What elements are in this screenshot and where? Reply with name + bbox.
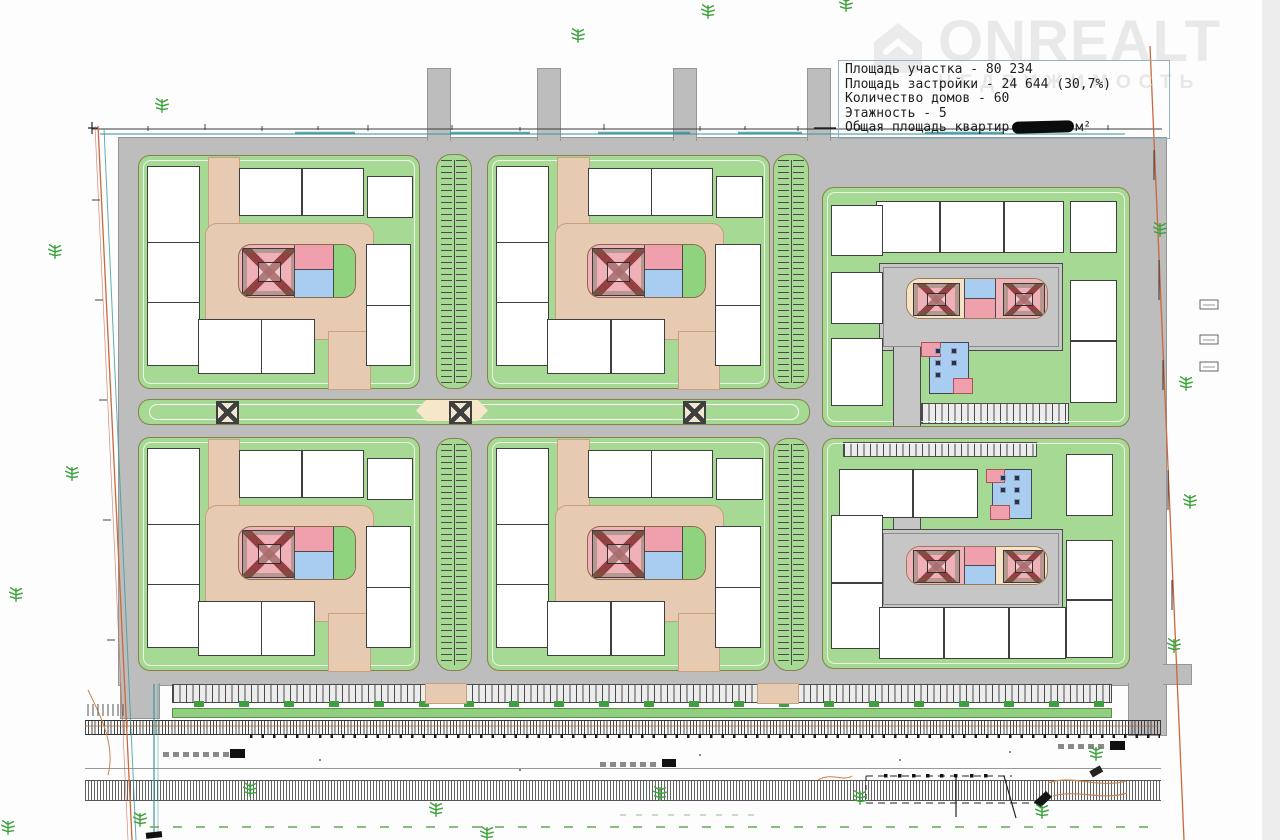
- play-area: [990, 505, 1010, 520]
- equipment-icon: [935, 360, 941, 366]
- equipment-icon: [951, 348, 957, 354]
- apartment-building: [831, 515, 883, 583]
- apartment-building: [1009, 607, 1066, 659]
- apartment-building: [366, 526, 411, 648]
- masterplan-drawing: ONREALT НЕДВИЖИМОСТЬ Площадь участка - 8…: [0, 0, 1280, 840]
- apartment-building: [839, 469, 913, 518]
- street-label-badge: [230, 749, 245, 758]
- west-road-extension: [120, 683, 160, 719]
- apartment-building: [913, 469, 978, 518]
- redacted-value: [1012, 121, 1074, 135]
- apartment-building: [367, 176, 413, 218]
- apartment-building: [496, 448, 549, 648]
- street-label-badge: [662, 759, 676, 767]
- residential-quarter: [487, 155, 770, 389]
- stat-line-houses: Количество домов - 60: [845, 92, 1163, 107]
- apartment-building: [547, 319, 665, 374]
- courtyard-access-road: [893, 347, 921, 426]
- apartment-building: [239, 168, 364, 216]
- playground-equipment: [592, 248, 646, 296]
- boulevard-square: [449, 401, 472, 424]
- apartment-building: [831, 583, 883, 649]
- play-area: [953, 378, 973, 394]
- apartment-building: [1070, 201, 1117, 253]
- playground-equipment: [242, 248, 296, 296]
- pedestrian-crossing: [425, 683, 467, 704]
- street-label: [163, 752, 229, 757]
- pedestrian-path: [678, 613, 720, 672]
- sports-court: [294, 269, 333, 298]
- apartment-building: [1070, 280, 1117, 341]
- sports-court: [294, 551, 333, 580]
- street-label-badge: [1110, 741, 1125, 750]
- parking-strip: [773, 438, 809, 671]
- stat-line-footprint: Площадь застройки - 24 644 (30,7%): [845, 78, 1163, 93]
- apartment-building: [1004, 201, 1064, 253]
- street-label: [600, 762, 660, 767]
- north-access-road: [537, 68, 561, 141]
- sports-court: [964, 565, 996, 585]
- railway-embankment: [85, 780, 1161, 801]
- boulevard-square: [216, 401, 239, 424]
- survey-line: [85, 768, 1161, 769]
- apartment-building: [1070, 341, 1117, 403]
- playground-equipment: [913, 283, 960, 316]
- play-area: [294, 527, 333, 551]
- residential-quarter: [138, 437, 420, 671]
- playground-equipment: [1003, 283, 1045, 316]
- pedestrian-path: [678, 331, 720, 390]
- apartment-building: [239, 450, 364, 498]
- lawn-strip: [682, 527, 705, 579]
- play-area: [644, 245, 683, 269]
- residential-quarter: [822, 438, 1130, 669]
- apartment-building: [944, 607, 1009, 659]
- apartment-building: [716, 458, 762, 500]
- boulevard-square: [683, 401, 706, 424]
- equipment-icon: [951, 360, 957, 366]
- apartment-building: [876, 201, 940, 253]
- street-planters: [180, 701, 1105, 707]
- apartment-building: [588, 168, 713, 216]
- pedestrian-crossing: [757, 683, 799, 704]
- parking-strip: [773, 154, 809, 389]
- north-access-road: [807, 68, 831, 141]
- apartment-building: [547, 601, 665, 656]
- apartment-building: [198, 601, 316, 656]
- apartment-building: [715, 526, 761, 648]
- play-area: [644, 527, 683, 551]
- equipment-icon: [1000, 487, 1006, 493]
- apartment-building: [831, 338, 883, 406]
- playground-equipment: [592, 530, 646, 578]
- playground: [906, 278, 1048, 319]
- playground: [906, 546, 1048, 585]
- north-access-road: [427, 68, 451, 141]
- apartment-building: [147, 448, 199, 648]
- apartment-building: [1066, 540, 1113, 600]
- play-area: [964, 298, 996, 319]
- apartment-building: [1066, 454, 1113, 516]
- equipment-icon: [935, 348, 941, 354]
- lawn-strip: [682, 245, 705, 297]
- north-access-road: [673, 68, 697, 141]
- equipment-icon: [1014, 499, 1020, 505]
- playground: [238, 526, 356, 580]
- equipment-icon: [935, 372, 941, 378]
- residential-quarter: [487, 437, 770, 671]
- parking-strip: [436, 154, 472, 389]
- sports-court: [964, 279, 996, 298]
- playground-equipment: [1003, 550, 1045, 583]
- pedestrian-path: [328, 613, 370, 672]
- apartment-building: [366, 244, 411, 366]
- apartment-building: [367, 458, 413, 500]
- apartment-building: [147, 166, 199, 366]
- sports-court: [644, 551, 683, 580]
- equipment-icon: [1000, 475, 1006, 481]
- image-edge-band: [1262, 0, 1280, 840]
- apartment-building: [879, 607, 944, 659]
- lawn-strip: [333, 245, 356, 297]
- site-stats-box: Площадь участка - 80 234 Площадь застрой…: [838, 60, 1170, 139]
- boundary-fence: [85, 720, 1161, 735]
- equipment-icon: [1014, 475, 1020, 481]
- sports-ground: [921, 340, 973, 394]
- apartment-building: [1066, 600, 1113, 658]
- playground: [238, 244, 356, 298]
- central-boulevard: [138, 399, 810, 425]
- east-road-stub: [1163, 664, 1192, 685]
- play-area: [964, 547, 996, 565]
- apartment-building: [940, 201, 1004, 253]
- stat-line-apartments: Общая площадь квартирм²: [845, 121, 1163, 136]
- lawn-strip: [333, 527, 356, 579]
- stat-line-floors: Этажность - 5: [845, 107, 1163, 122]
- equipment-icon: [1014, 487, 1020, 493]
- sports-ground: [986, 467, 1032, 519]
- apartment-building: [198, 319, 316, 374]
- apartment-building: [831, 272, 883, 324]
- playground-equipment: [242, 530, 296, 578]
- green-verge: [172, 708, 1112, 718]
- playground: [587, 526, 705, 580]
- playground-equipment: [913, 550, 960, 583]
- play-area: [294, 245, 333, 269]
- residential-quarter: [822, 187, 1130, 427]
- street-label: [1058, 744, 1108, 749]
- parking-row: [843, 442, 1037, 457]
- apartment-building: [831, 205, 883, 256]
- playground: [587, 244, 705, 298]
- apartment-building: [715, 244, 761, 366]
- parking-strip: [436, 438, 472, 671]
- apartment-building: [496, 166, 549, 366]
- sports-court: [644, 269, 683, 298]
- stat-line-area: Площадь участка - 80 234: [845, 63, 1163, 78]
- apartment-building: [716, 176, 762, 218]
- pedestrian-path: [328, 331, 370, 390]
- apartment-building: [588, 450, 713, 498]
- boundary-markers: [250, 734, 1160, 738]
- parking-row: [921, 403, 1069, 424]
- residential-quarter: [138, 155, 420, 389]
